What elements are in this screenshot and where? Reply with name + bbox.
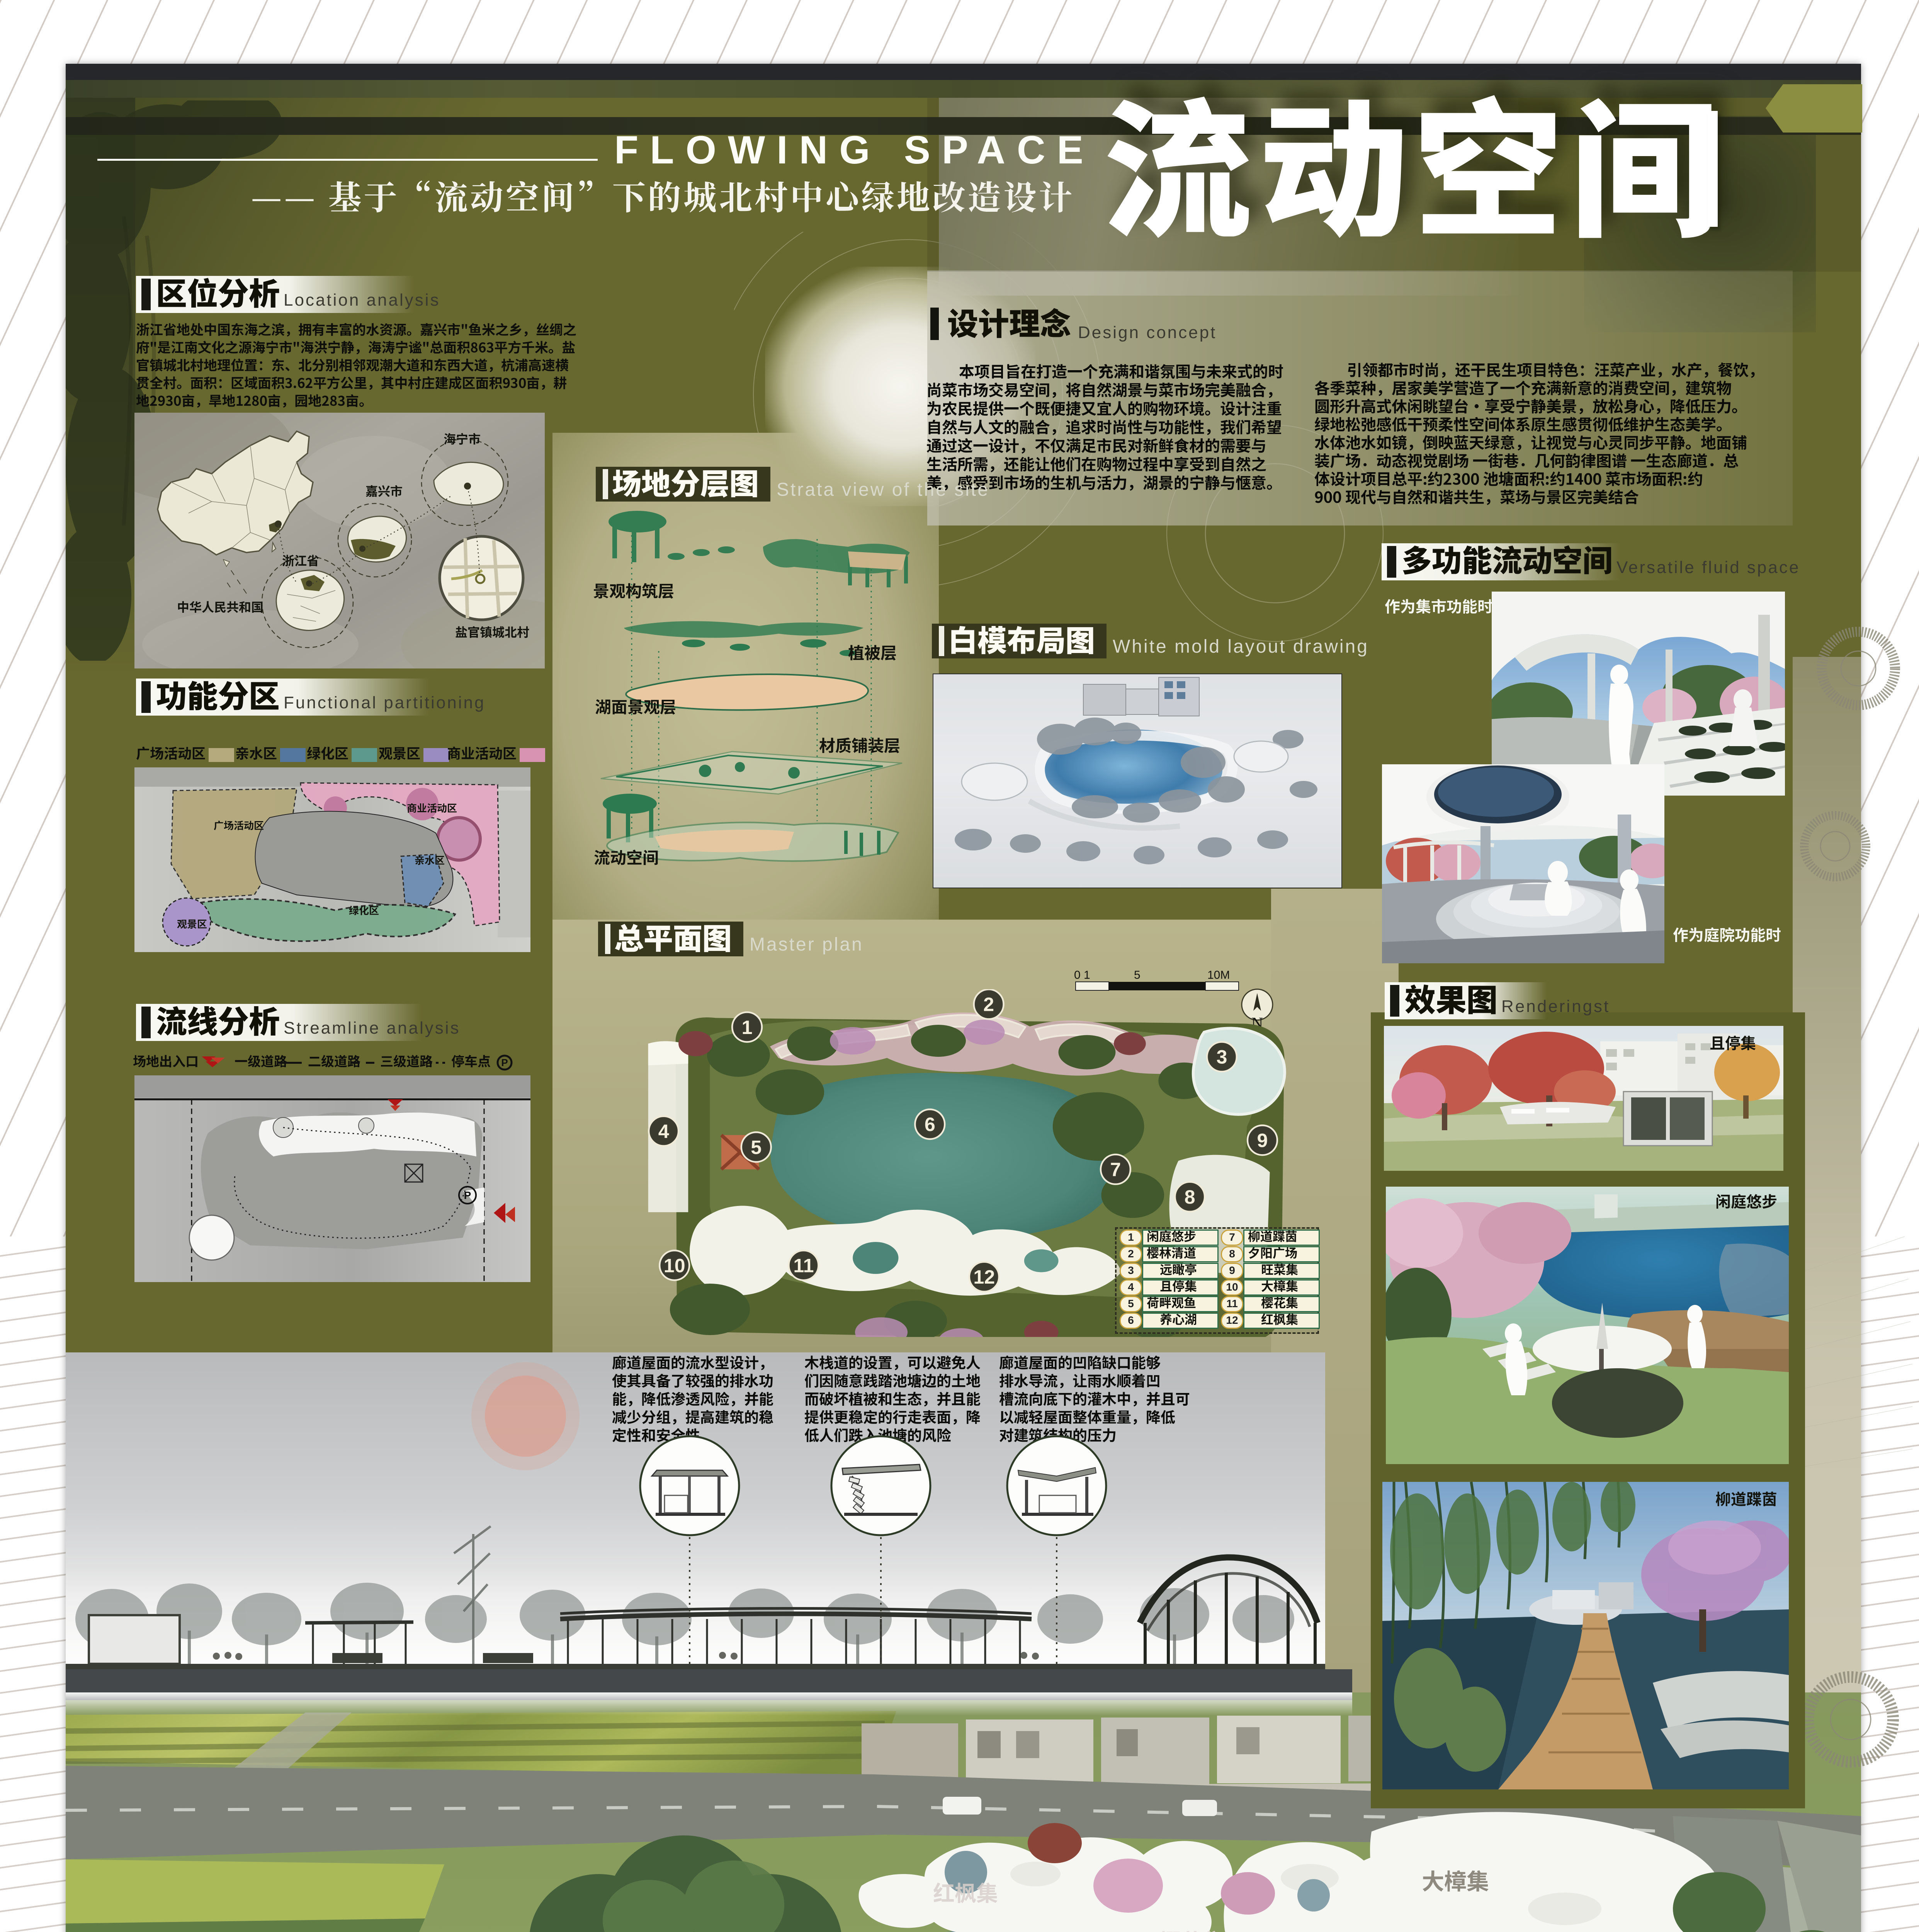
svg-text:12: 12 <box>973 1266 995 1288</box>
svg-text:1: 1 <box>742 1016 753 1038</box>
svg-text:9: 9 <box>1257 1129 1268 1151</box>
svg-text:7: 7 <box>1110 1158 1121 1180</box>
svg-text:6: 6 <box>925 1113 935 1135</box>
svg-text:4: 4 <box>658 1120 669 1142</box>
svg-text:10M: 10M <box>1207 969 1230 981</box>
svg-text:3: 3 <box>1216 1046 1227 1068</box>
svg-text:0 1: 0 1 <box>1074 969 1090 981</box>
svg-text:P: P <box>464 1189 471 1201</box>
svg-text:5: 5 <box>751 1136 761 1158</box>
svg-text:P: P <box>501 1057 508 1068</box>
svg-text:11: 11 <box>793 1254 814 1276</box>
svg-text:10: 10 <box>664 1254 685 1276</box>
svg-text:5: 5 <box>1134 969 1141 981</box>
svg-text:8: 8 <box>1185 1186 1195 1208</box>
svg-text:2: 2 <box>983 993 994 1015</box>
